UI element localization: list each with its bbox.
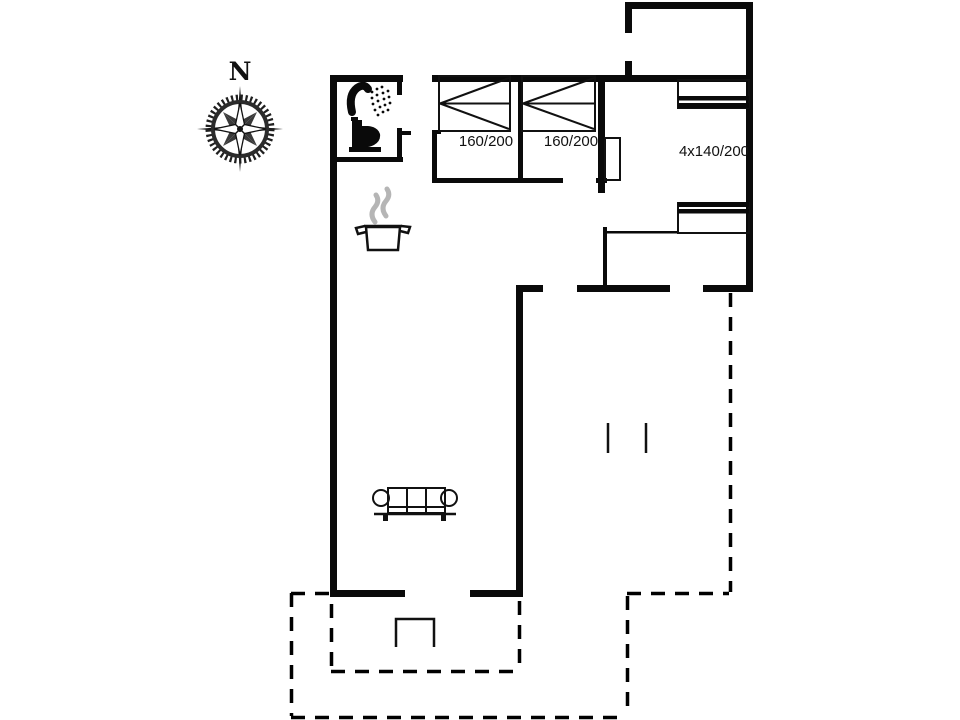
- terrace-steps-icon: [396, 619, 434, 647]
- wall-bedroom2-east: [598, 82, 605, 193]
- wall-bottom-left: [330, 590, 405, 597]
- bed1-size-label: 160/200: [459, 133, 513, 150]
- compass-center: [237, 126, 243, 132]
- steam-icon-right: [383, 189, 389, 216]
- sofa-arm-right: [441, 490, 457, 506]
- bed2-diagonal-down: [523, 104, 594, 130]
- floor-plan-drawing: 160/200 160/200 4x140/200: [0, 0, 960, 720]
- wall-annex-left-upper: [625, 2, 632, 33]
- wall-bathroom-bottom: [337, 157, 403, 162]
- bunk1-bar-a: [678, 96, 749, 101]
- sofa-back-cushions: [388, 488, 445, 507]
- shower-hose: [351, 86, 368, 112]
- cooking-pot-icon: [356, 189, 410, 250]
- wall-south-seg-3: [703, 285, 753, 292]
- compass-north-label: N: [229, 57, 252, 86]
- sofa-icon: [373, 488, 457, 521]
- wall-top-bathroom: [330, 75, 403, 82]
- bed1-diagonal-down: [440, 104, 509, 130]
- bathroom-door-jamb: [402, 131, 411, 135]
- bunk2-bar-b: [678, 209, 749, 214]
- toilet-button: [351, 117, 358, 121]
- toilet-icon: [349, 117, 381, 152]
- wall-bedroom1-west: [432, 130, 437, 183]
- bedroom1-double-bed-icon: [439, 76, 510, 131]
- wall-bunkroom-south-line: [607, 231, 678, 234]
- bunk-bed-lower-icon: [678, 202, 749, 233]
- wall-annex-left-lower: [625, 61, 632, 82]
- floor-plan-page: 160/200 160/200 4x140/200: [0, 0, 960, 720]
- compass-rose-icon: N: [197, 57, 283, 172]
- wall-bathroom-right-upper: [397, 82, 402, 95]
- wall-south-seg-2: [577, 285, 670, 292]
- wardrobe-icon: [605, 138, 620, 180]
- bedroom2-double-bed-icon: [522, 76, 595, 131]
- bunk2-outline: [678, 203, 749, 233]
- wall-bathroom-right-lower: [397, 128, 402, 157]
- wall-living-east: [516, 285, 523, 597]
- bed2-size-label: 160/200: [544, 133, 598, 150]
- toilet-tank: [352, 120, 362, 147]
- pot-body: [366, 227, 400, 250]
- shower-spray: [371, 86, 392, 117]
- terrace-dashed-outline: [291, 293, 731, 718]
- toilet-bowl: [362, 126, 380, 147]
- sofa-arm-left: [373, 490, 389, 506]
- wall-annex-top: [625, 2, 753, 9]
- wall-left: [330, 75, 337, 597]
- bunk2-bar-a: [678, 202, 749, 207]
- pot-handle-left: [356, 226, 366, 234]
- sofa-leg-left: [383, 515, 388, 521]
- bunk-size-label: 4x140/200: [679, 143, 749, 160]
- sofa-seat: [388, 507, 445, 513]
- shower-icon: [351, 86, 392, 117]
- bunk-bed-upper-icon: [678, 80, 749, 108]
- sofa-leg-right: [441, 515, 446, 521]
- wall-bedrooms-south: [432, 178, 563, 183]
- wall-bottom-right: [470, 590, 523, 597]
- pot-handle-right: [400, 226, 410, 233]
- steam-icon-left: [372, 195, 378, 222]
- bunk1-bar-b: [678, 103, 749, 108]
- wall-bunkroom-west-lower: [603, 227, 607, 292]
- toilet-base: [349, 147, 381, 152]
